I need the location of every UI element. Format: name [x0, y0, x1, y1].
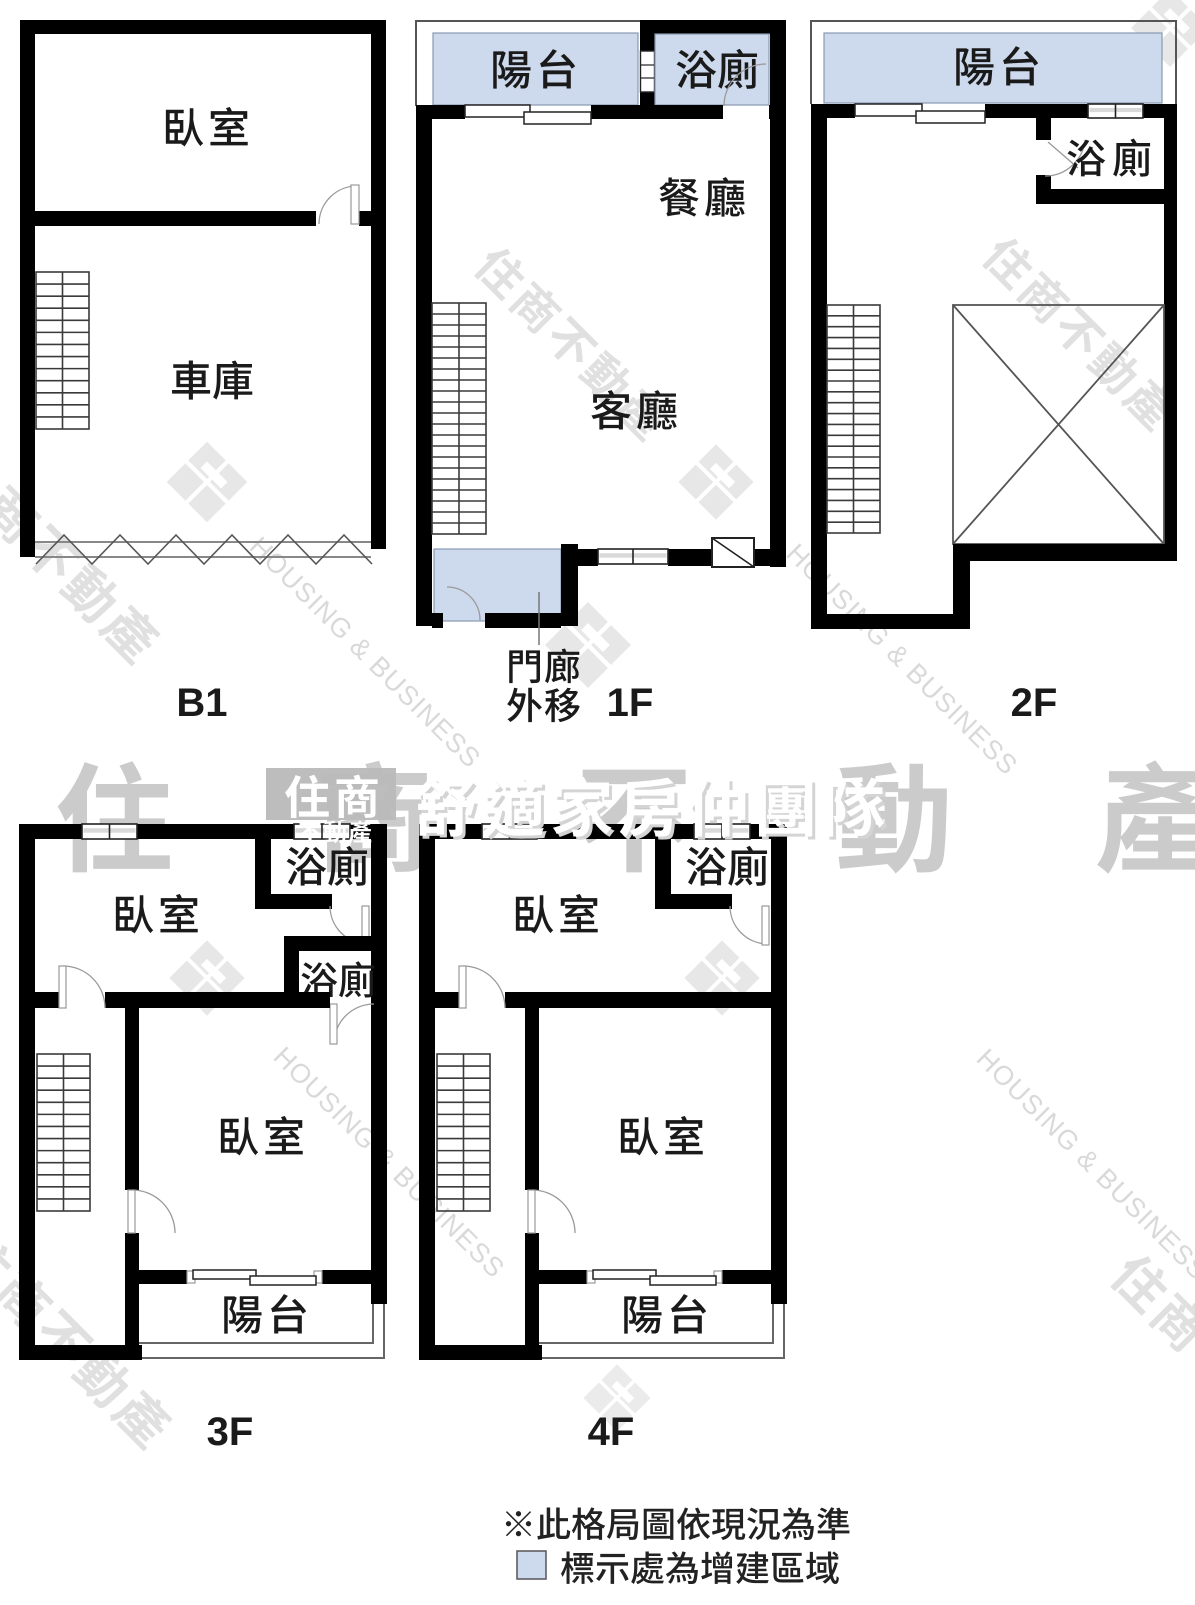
svg-text:1F: 1F	[607, 681, 654, 725]
svg-text:2F: 2F	[1011, 681, 1058, 725]
svg-text:HOUSING & BUSINESS: HOUSING & BUSINESS	[971, 1043, 1195, 1286]
svg-text:3F: 3F	[207, 1410, 254, 1454]
svg-text:B1: B1	[176, 681, 227, 725]
svg-text:4F: 4F	[588, 1410, 635, 1454]
